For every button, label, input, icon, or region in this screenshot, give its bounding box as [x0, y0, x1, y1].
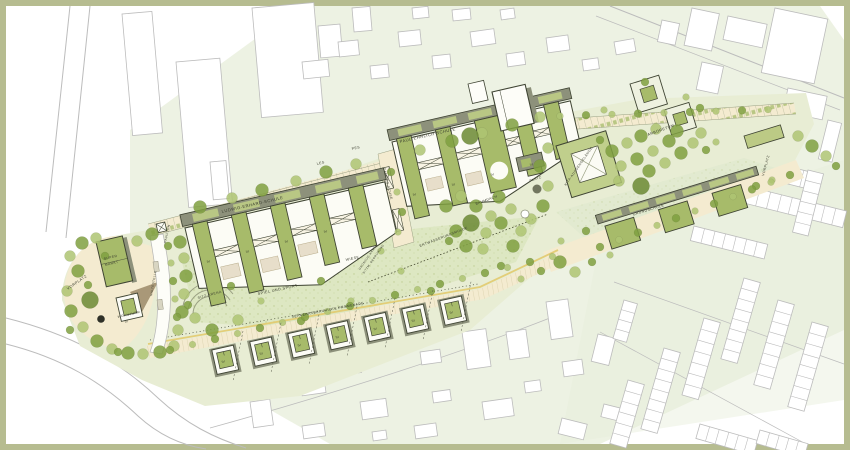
site-plan: GRUNDSCHULE IVIIIIVIIIIVIIIIV LUDWIG-ERH… [0, 0, 850, 450]
bus-stop-bay-2 [157, 299, 163, 310]
plaza-circle-dark [533, 185, 542, 194]
plaza-circle-light [521, 210, 529, 218]
landmark-tree-dot [97, 315, 105, 323]
bus-stop-bay [153, 261, 159, 272]
site-plan-canvas: GRUNDSCHULE IVIIIIVIIIIVIIIIV LUDWIG-ERH… [0, 0, 850, 450]
